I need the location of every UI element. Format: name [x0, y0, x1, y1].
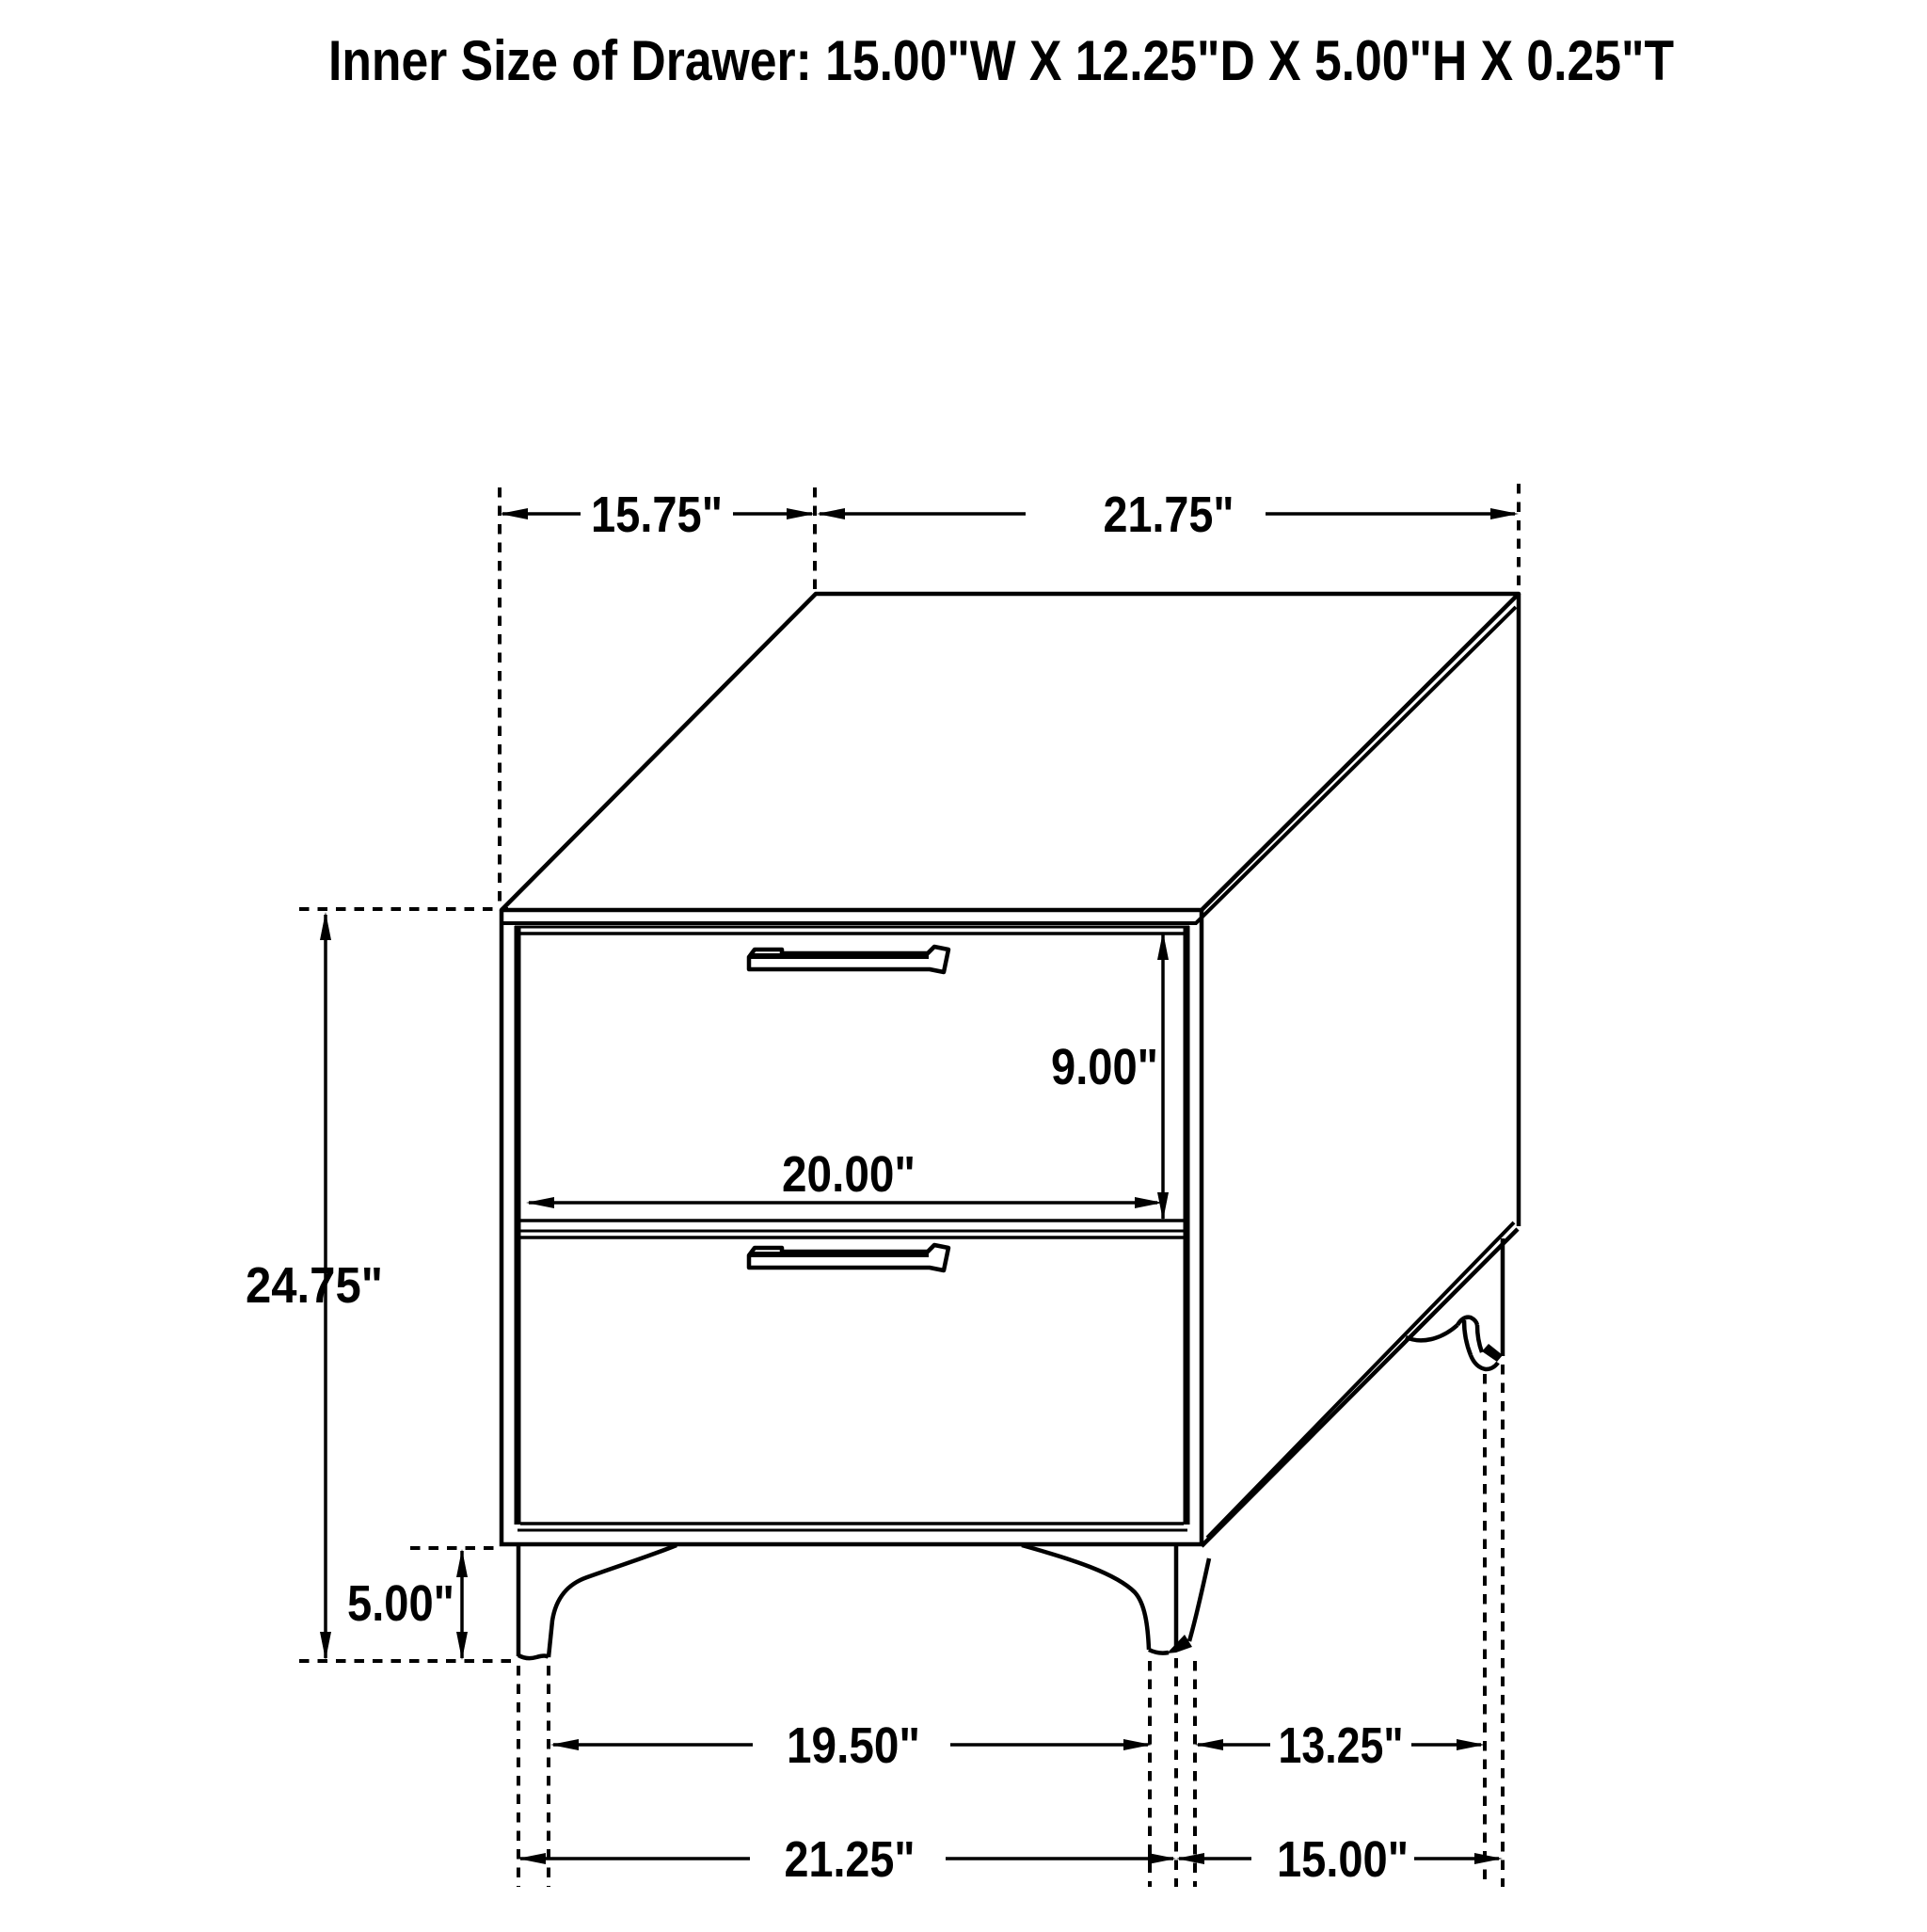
- svg-text:19.50": 19.50": [787, 1717, 920, 1774]
- svg-text:15.75": 15.75": [591, 487, 723, 543]
- svg-text:13.25": 13.25": [1279, 1717, 1404, 1774]
- svg-text:9.00": 9.00": [1051, 1039, 1158, 1095]
- svg-text:20.00": 20.00": [782, 1146, 916, 1203]
- svg-text:21.75": 21.75": [1104, 487, 1234, 543]
- svg-text:24.75": 24.75": [246, 1257, 383, 1314]
- svg-text:5.00": 5.00": [347, 1575, 454, 1632]
- svg-text:15.00": 15.00": [1277, 1831, 1409, 1888]
- svg-text:21.25": 21.25": [785, 1831, 916, 1888]
- svg-text:Inner Size of Drawer: 15.00"W: Inner Size of Drawer: 15.00"W X 12.25"D …: [328, 29, 1674, 92]
